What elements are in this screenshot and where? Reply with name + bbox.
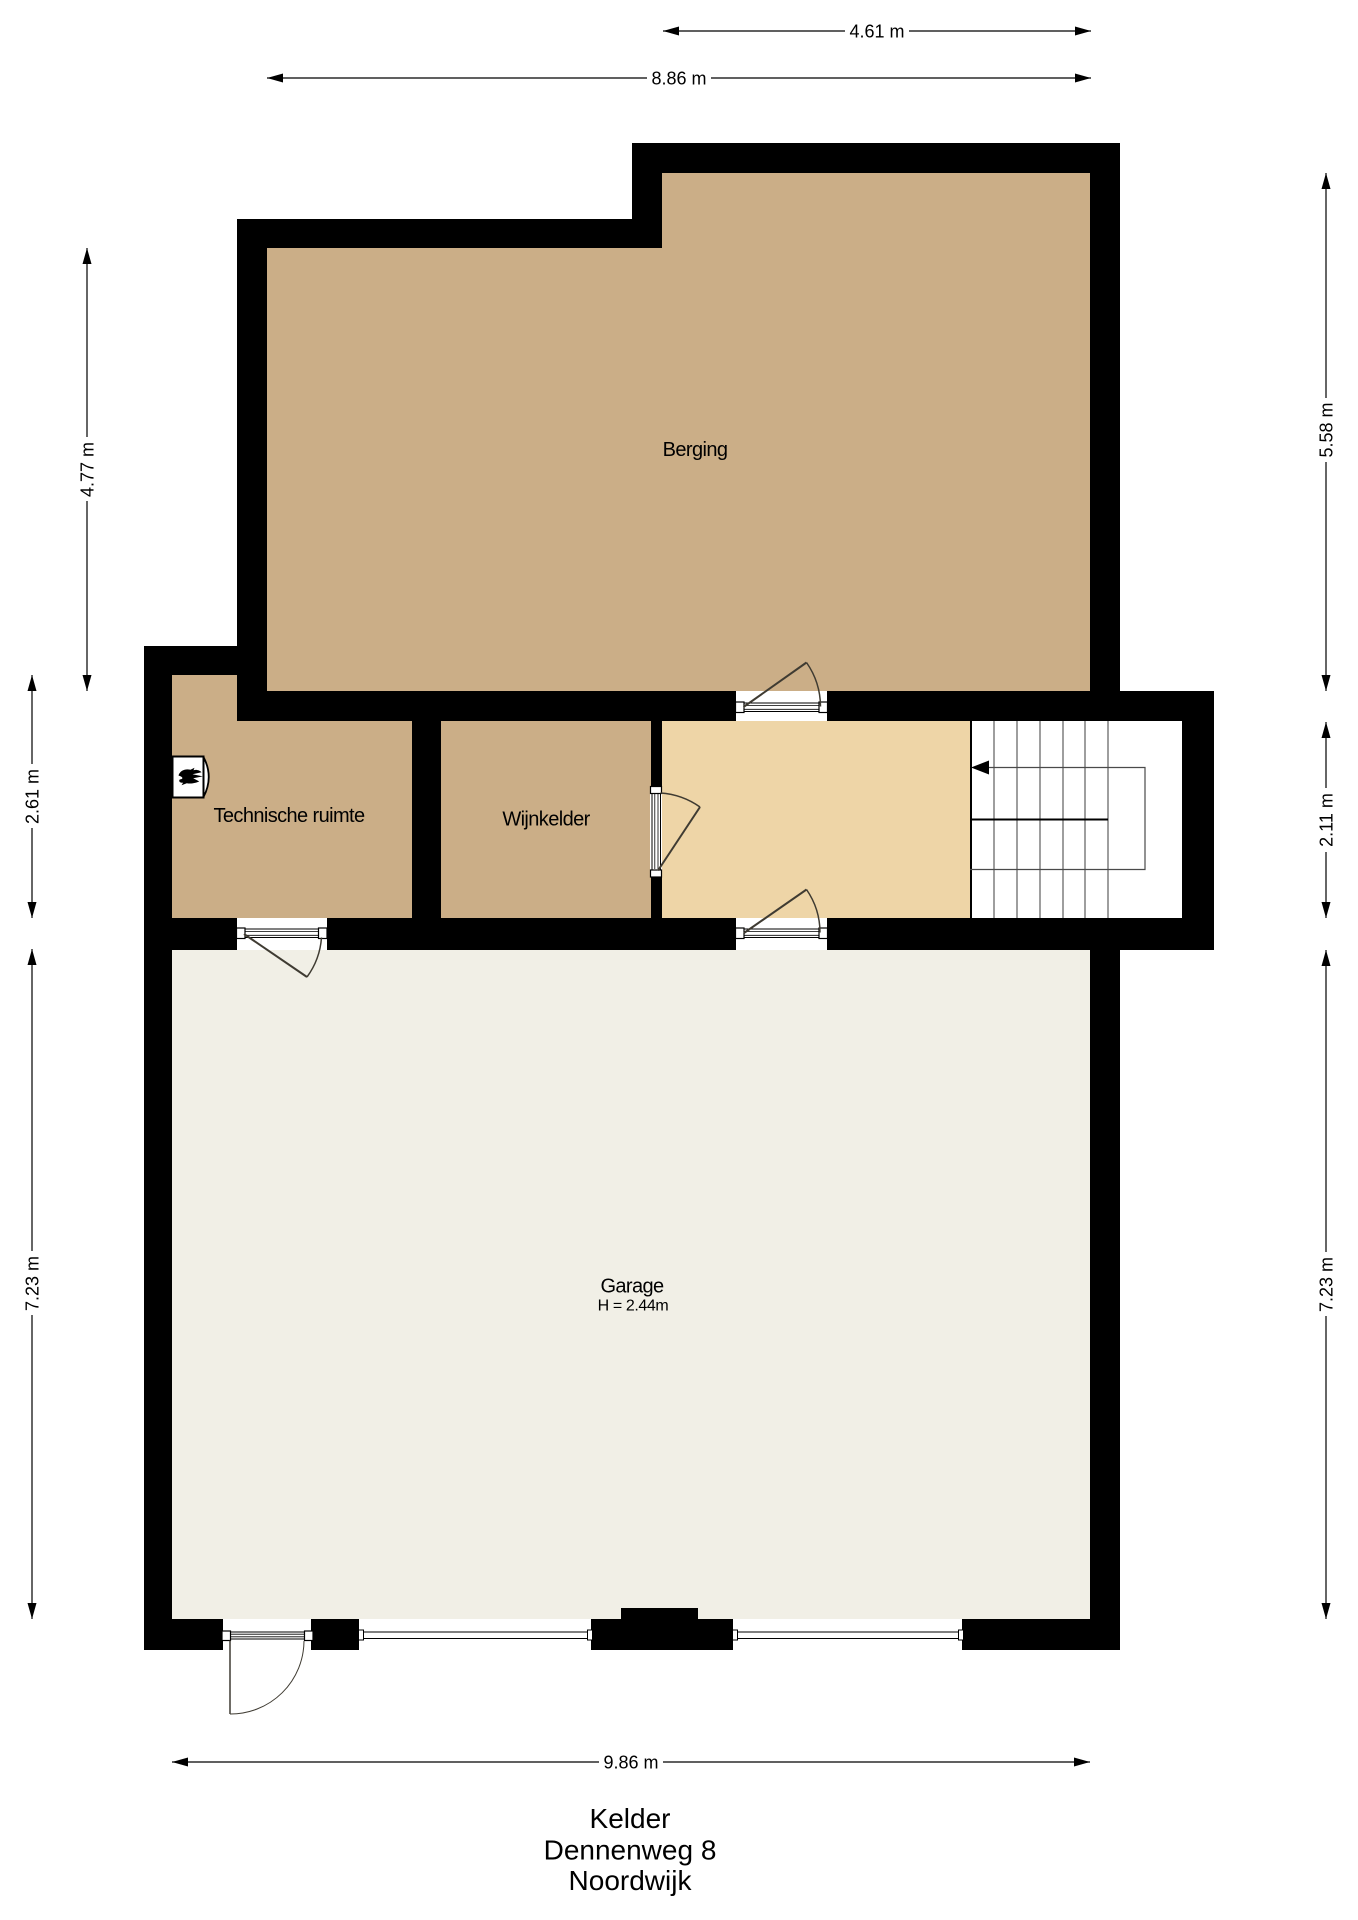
svg-text:Kelder: Kelder: [590, 1803, 671, 1834]
svg-text:Garage: Garage: [600, 1276, 664, 1298]
svg-text:Noordwijk: Noordwijk: [569, 1865, 693, 1896]
svg-text:Technische ruimte: Technische ruimte: [214, 805, 365, 827]
svg-text:7.23 m: 7.23 m: [23, 1256, 43, 1311]
svg-text:8.86 m: 8.86 m: [651, 69, 706, 89]
svg-text:2.61 m: 2.61 m: [23, 769, 43, 824]
svg-text:9.86 m: 9.86 m: [603, 1753, 658, 1773]
svg-text:7.23 m: 7.23 m: [1317, 1257, 1337, 1312]
svg-text:H = 2.44m: H = 2.44m: [598, 1298, 669, 1315]
svg-text:4.61 m: 4.61 m: [849, 22, 904, 42]
svg-text:5.58 m: 5.58 m: [1317, 402, 1337, 457]
svg-text:2.11 m: 2.11 m: [1317, 793, 1337, 847]
svg-text:4.77 m: 4.77 m: [78, 442, 98, 497]
svg-text:Dennenweg 8: Dennenweg 8: [544, 1835, 717, 1866]
svg-text:Wijnkelder: Wijnkelder: [502, 809, 590, 831]
svg-text:Berging: Berging: [663, 439, 728, 461]
